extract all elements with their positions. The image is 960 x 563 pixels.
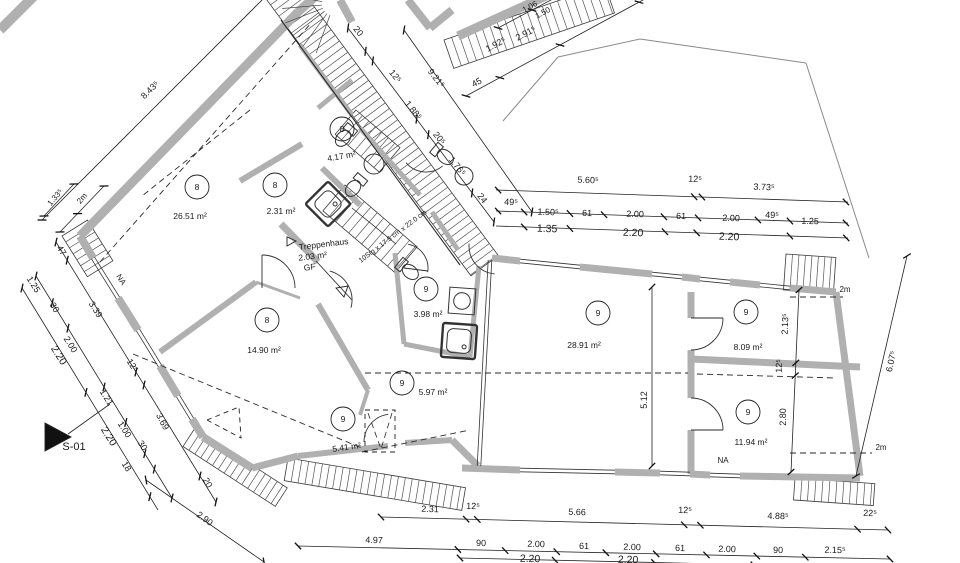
room-area-label: 3.98 m² [414, 309, 443, 319]
wall-segment [492, 258, 520, 261]
room-number: 9 [596, 308, 601, 318]
dimension-label: 2.31 [421, 504, 439, 514]
room-number: 9 [400, 378, 405, 388]
room-area-label: 5.97 m² [419, 387, 448, 397]
wall-segment [615, 472, 660, 473]
dimension-label: 2.20 [520, 553, 541, 563]
section-label: S-01 [62, 441, 85, 453]
dimension-label: 61 [676, 211, 686, 221]
dimension-label: 1.35 [537, 223, 558, 236]
dimension-label: 5.66 [568, 507, 586, 517]
dimension-label: 2.13⁵ [780, 313, 791, 335]
wall-segment [462, 468, 520, 470]
room-area-label: 14.90 m² [247, 345, 281, 355]
dimension-label: 90 [773, 545, 783, 555]
dimension-label: 2.00 [722, 213, 740, 224]
floor-plan: 826.51 m²82.31 m²84.17 m²814.90 m²93.98 … [0, 0, 960, 563]
dimension-label: 1.50⁵ [537, 207, 559, 218]
dimension-label: 2.80 [778, 408, 788, 426]
room-number: 9 [744, 307, 749, 317]
floor-plan-page: 826.51 m²82.31 m²84.17 m²814.90 m²93.98 … [0, 0, 960, 563]
room-number: 9 [746, 407, 751, 417]
dimension-label: 22⁵ [863, 508, 877, 518]
dimension-label: 1.25 [801, 216, 819, 227]
dimension-label: 49⁵ [765, 210, 779, 220]
dimension-label: 12⁵ [466, 501, 480, 511]
room-area-label: 8.09 m² [734, 342, 763, 352]
dimension-label: NA [717, 456, 729, 465]
room-number: 8 [195, 182, 200, 192]
wall-segment [682, 277, 700, 279]
room-number: 9 [424, 284, 429, 294]
dimension-label: 90 [476, 538, 486, 548]
dimension-label: 2.00 [718, 544, 736, 554]
room-number: 8 [265, 315, 270, 325]
dimension-label: 2.20 [618, 554, 639, 563]
dimension-label: 2.00 [626, 209, 644, 220]
dimension-label: 49⁵ [504, 197, 518, 207]
stairwell-label: GF [303, 261, 316, 272]
dimension-label: 2.20 [623, 227, 644, 240]
dimension-label: 3.73⁵ [753, 182, 775, 193]
dimension-label: 12⁵ [688, 174, 702, 184]
wall-segment [740, 476, 860, 478]
wall-segment [690, 474, 710, 475]
dimension-label: 5.60⁵ [577, 175, 599, 186]
wall-segment [730, 282, 760, 285]
room-area-label: 28.91 m² [567, 340, 601, 350]
dimension-label: 61 [582, 208, 592, 218]
dimension-label: 2.00 [623, 542, 641, 552]
dimension-label: 12⁵ [678, 505, 692, 515]
dimension-label: 61 [579, 541, 589, 551]
dimension-label: 2m [875, 443, 886, 452]
dimension-label: 61 [675, 543, 685, 553]
dimension-label: 2.00 [527, 539, 545, 549]
dimension-label: 2m [839, 285, 850, 294]
dimension-label: 4.88⁵ [767, 511, 789, 522]
room-area-label: 2.31 m² [267, 206, 296, 216]
room-area-label: 11.94 m² [735, 437, 768, 447]
dimension-label: 2.15⁵ [824, 545, 846, 556]
dimension-label: 5.12 [639, 391, 649, 409]
dimension-label: 2.20 [719, 231, 740, 244]
dimension-label: 12⁵ [774, 359, 784, 373]
room-number: 8 [340, 124, 345, 134]
dimension-label: 4.97 [365, 535, 383, 545]
room-number: 9 [341, 414, 346, 424]
room-number: 8 [273, 180, 278, 190]
room-area-label: 26.51 m² [173, 211, 207, 221]
